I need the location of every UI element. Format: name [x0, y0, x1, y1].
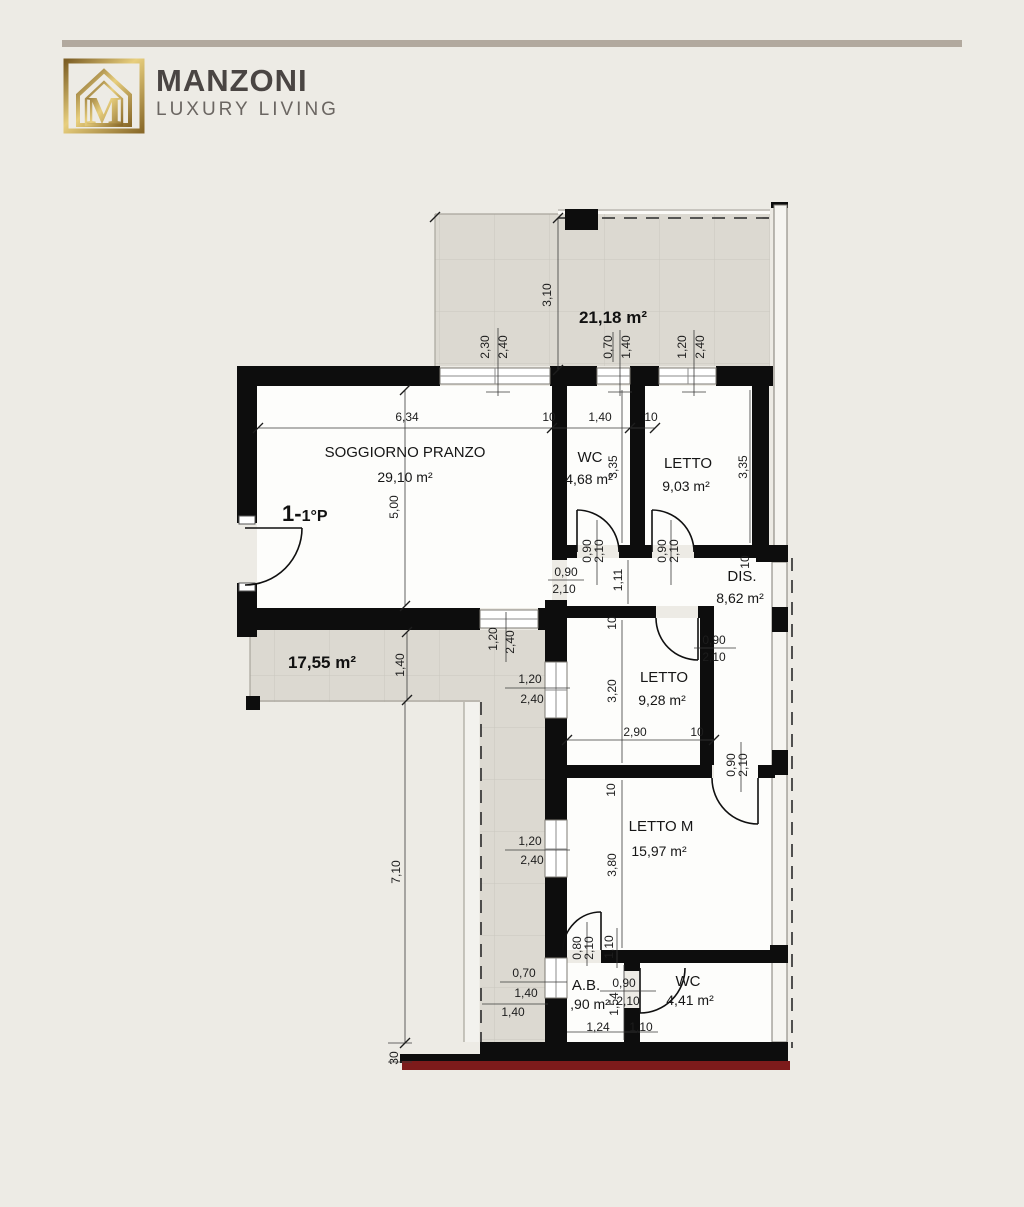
dim: 10 [738, 555, 752, 569]
dim: 1,20 [518, 672, 542, 686]
dim: 2,10 [702, 650, 726, 664]
dim: 2,40 [520, 692, 544, 706]
window-corridor-1 [545, 662, 567, 718]
dim: 1,10 [602, 935, 616, 959]
dim: 3,20 [605, 679, 619, 703]
dim: 10 [644, 410, 658, 424]
room-dis-area: 8,62 m² [716, 590, 764, 606]
dim: 2,40 [693, 335, 707, 359]
room-letto1-name: LETTO [664, 455, 712, 472]
dim: 1,20 [675, 335, 689, 359]
room-wc1-area: 4,68 m² [565, 471, 613, 487]
room-letto1-area: 9,03 m² [662, 478, 710, 494]
floor-plan: 3,10 2,30 2,40 0,70 1,40 1,20 2,40 6,34 … [0, 0, 1024, 1207]
parapet-right [774, 205, 787, 562]
dim: 3,80 [605, 853, 619, 877]
dim: 10 [604, 783, 618, 797]
room-ab-name: A.B. [572, 977, 600, 994]
dim: 2,30 [478, 335, 492, 359]
bottom-wall [480, 1042, 788, 1062]
room-lettom-name: LETTO M [629, 818, 694, 835]
corridor-outer-strip [464, 702, 479, 1042]
dim: 0,90 [702, 633, 726, 647]
room-ab-area: ,90 m² [570, 996, 610, 1012]
window-top-1 [440, 368, 550, 384]
dim: 1,10 [629, 1020, 653, 1034]
room-wc1-name: WC [578, 449, 603, 466]
window-ab [545, 958, 567, 998]
room-soggiorno-name: SOGGIORNO PRANZO [325, 444, 486, 461]
dim: 1,40 [393, 653, 407, 677]
dim: 2,10 [552, 582, 576, 596]
dim: 1,11 [611, 568, 625, 591]
dim: 1,20 [486, 627, 500, 651]
dim: 2,40 [520, 853, 544, 867]
window-corridor-2 [545, 820, 567, 877]
dim-soggiorno-width: 6,34 [395, 410, 419, 424]
window-top-2 [597, 368, 630, 384]
dim: 1,40 [619, 335, 633, 359]
dim: 2,10 [592, 539, 606, 563]
dim: 30 [387, 1051, 401, 1065]
dim: 1,40 [501, 1005, 525, 1019]
accent-red-line [402, 1061, 790, 1070]
dim: 10 [605, 616, 619, 630]
dim: 0,90 [612, 976, 636, 990]
room-letto2-name: LETTO [640, 669, 688, 686]
right-window-wall [772, 562, 787, 1042]
dim: 1,40 [514, 986, 538, 1000]
dim: 0,70 [601, 335, 615, 359]
room-dis-name: DIS. [727, 568, 756, 585]
dim: 0,90 [554, 565, 578, 579]
room-wc2-name: WC [676, 973, 701, 990]
dim: 2,40 [503, 630, 517, 654]
room-wc2-area: 4,41 m² [666, 992, 714, 1008]
dim: 2,10 [667, 539, 681, 563]
dim: 3,35 [736, 455, 750, 479]
dim: 1,20 [518, 834, 542, 848]
dim-terrace-depth: 3,10 [540, 283, 554, 307]
dim: 1,24 [586, 1020, 610, 1034]
terrace-left-area: 17,55 m² [288, 653, 356, 672]
dim: 2,90 [623, 725, 647, 739]
room-lettom-area: 15,97 m² [631, 843, 687, 859]
dim-soggiorno-height: 5,00 [387, 495, 401, 519]
dim: 10 [542, 410, 556, 424]
dim: 10 [690, 725, 704, 739]
terrace-top-area: 21,18 m² [579, 308, 647, 327]
dim-corridor-height: 7,10 [389, 860, 403, 884]
dim: 2,10 [582, 936, 596, 960]
room-soggiorno-area: 29,10 m² [377, 469, 433, 485]
dim: 0,70 [512, 966, 536, 980]
window-soggiorno-south [480, 610, 538, 628]
dim: 2,40 [496, 335, 510, 359]
dim: 2,10 [736, 753, 750, 777]
dim: 1,40 [588, 410, 612, 424]
room-letto2-area: 9,28 m² [638, 692, 686, 708]
window-top-3 [659, 368, 716, 384]
